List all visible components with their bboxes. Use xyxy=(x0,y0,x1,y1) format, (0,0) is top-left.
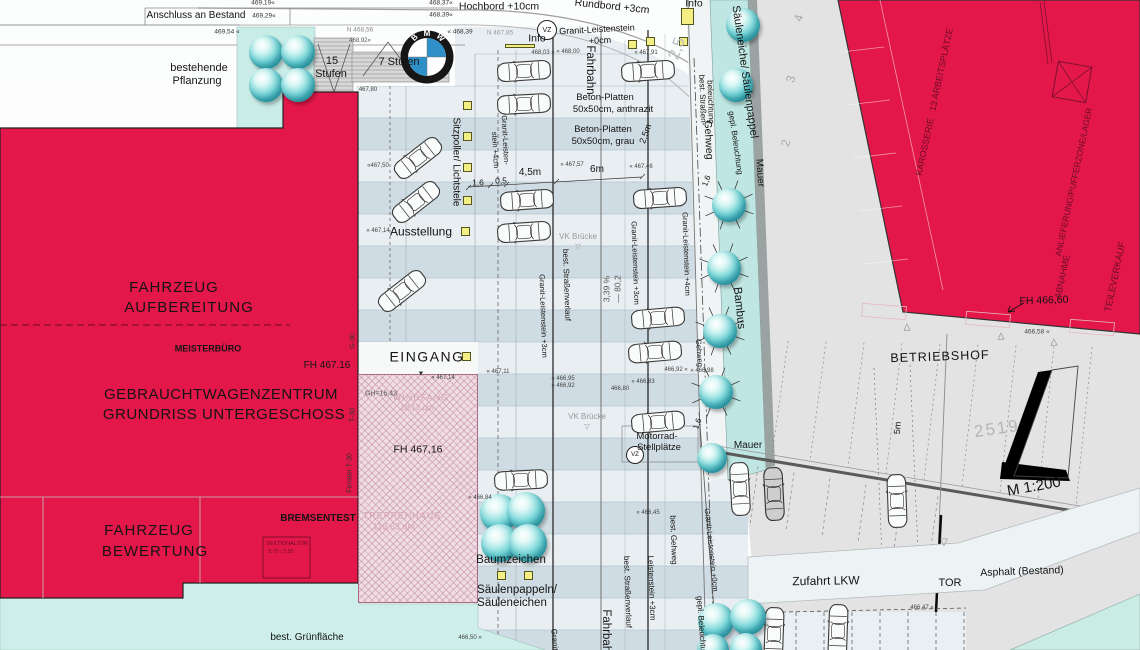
elevation-mark: «467,50 xyxy=(367,163,389,169)
car-symbol xyxy=(762,607,785,650)
sektionaltor: 3,75 / 3,50 xyxy=(268,550,294,556)
stufen-7: 7 Stufen xyxy=(379,57,420,69)
light-symbol xyxy=(497,571,506,580)
car-symbol xyxy=(762,467,786,521)
light-symbol xyxy=(463,132,472,141)
fahrbahn: Fahrbahn xyxy=(584,45,596,94)
survey-point: N 467,85 xyxy=(487,31,513,38)
anschluss-an-bestand: Anschluss an Bestand xyxy=(147,11,246,22)
windfang: WINDFANG xyxy=(393,393,450,402)
elevation-mark: « 467,14 xyxy=(366,228,389,234)
elevation-mark: 466,92 « xyxy=(664,367,687,373)
light-symbol xyxy=(461,227,470,236)
granit-leistenstein-4cm: Granit-Leisten- xyxy=(500,115,510,165)
elevation-mark: 469,19« xyxy=(251,1,275,8)
fenster-t30: Fenster T-30 xyxy=(346,453,353,493)
door-triangle: △ xyxy=(997,331,1004,341)
dimension: 5m xyxy=(893,421,903,434)
beton-platten-grau: Beton-Platten xyxy=(574,125,632,135)
gefaelle: — 80,2 xyxy=(614,275,623,302)
hochbord: Hochbord +10cm xyxy=(459,1,539,12)
elevation-mark: « 467,57 xyxy=(560,162,583,168)
tree-symbol xyxy=(281,68,315,102)
elevation-mark: 466,50 « xyxy=(458,635,481,641)
granit-leistenstein-3cm: Granit-Leistenstein +3cm xyxy=(630,221,641,305)
car-symbol xyxy=(826,604,849,650)
fahrzeug-aufbereitung: FAHRZEUG xyxy=(129,280,219,296)
dimension: 1,6 xyxy=(472,179,484,188)
meisterbuero: MEISTERBÜRO xyxy=(175,344,242,353)
door-triangle: △ xyxy=(903,322,910,332)
fh-467-16: FH 467.16 xyxy=(304,361,351,372)
elevation-mark: « 466,92 xyxy=(551,383,574,389)
treppenhaus: 113,63 qm xyxy=(373,522,415,531)
elevation-mark: « 468,00 xyxy=(556,49,579,55)
gate-arrow: ▽ xyxy=(940,538,948,549)
tree-symbol xyxy=(730,599,766,635)
info-label: Info xyxy=(685,0,703,10)
elevation-mark: 466,47 « xyxy=(910,605,933,611)
elevation-mark: 469,29« xyxy=(252,14,276,21)
elevation-mark: 468,39« xyxy=(429,13,453,20)
light-symbol xyxy=(646,37,655,46)
eingang-marker: ▼ xyxy=(418,370,425,377)
mauer: Mauer xyxy=(753,158,765,187)
light-symbol xyxy=(628,40,637,49)
elevation-mark: « 467,11 xyxy=(487,369,510,375)
elevation-mark: 468,37« xyxy=(429,1,453,8)
light-symbol xyxy=(463,196,472,205)
tuer-t30: T-30 xyxy=(349,408,356,422)
windfang: 18,12 qm xyxy=(400,404,433,412)
bamboo-tree-symbol xyxy=(712,188,746,222)
site-plan-canvas: Anschluss an Bestand469,19«469,29«469,54… xyxy=(0,0,1140,650)
elevation-mark: « 466,45 xyxy=(636,510,659,516)
gefaelle: 3,39 % xyxy=(603,276,612,302)
dimension: 0,5 xyxy=(495,177,507,186)
sektionaltor: SEKTIONALTOR xyxy=(266,542,308,548)
bremsentest: BREMSENTEST xyxy=(280,514,356,525)
baumzeichen: Baumzeichen xyxy=(476,554,546,566)
dimension: 4,5m xyxy=(519,168,541,179)
best-strassenverlauf: best. Straßenverlauf xyxy=(561,249,572,321)
gebrauchtwagenzentrum: GEBRAUCHTWAGENZENTRUM xyxy=(104,387,338,403)
beton-platten-anthrazit: 50x50cm, anthrazit xyxy=(573,105,653,115)
elevation-mark: 469,54 « xyxy=(214,30,239,37)
fahrzeug-bewertung: BEWERTUNG xyxy=(102,544,208,560)
saeulenpappeln-saeuleneichen: Säuleneichen xyxy=(477,597,547,609)
elevation-mark: « 467,91 xyxy=(634,50,657,56)
best-strassenverlauf: best. Straßenverlauf xyxy=(622,556,633,628)
door-triangle: △ xyxy=(1050,337,1057,347)
beton-platten-anthrazit: Beton-Platten xyxy=(576,93,634,103)
zufahrt-lkw: Zufahrt LKW xyxy=(792,574,860,588)
granit-leistenstein-4cm: Granit-Leistenstein +4cm xyxy=(681,212,692,296)
fahrbahn: Fahrbahn xyxy=(600,609,612,650)
car-symbol xyxy=(494,468,548,492)
vk-symbol: ▽ xyxy=(575,243,580,250)
tree-symbol xyxy=(249,35,283,69)
elevation-mark: « 467,14 xyxy=(431,375,454,381)
best-gruenflaeche: best. Grünfläche xyxy=(270,633,343,644)
eingang: EINGANG xyxy=(389,350,464,365)
elevation-mark: « 466,98 xyxy=(690,368,713,374)
elevation-mark: 468,92« xyxy=(349,38,371,44)
elevation-mark: 467,80 xyxy=(359,87,377,93)
light-symbol xyxy=(463,101,472,110)
tuer-g30: G-30 xyxy=(349,333,356,349)
bestehende-pflanzung: Pflanzung xyxy=(173,76,222,88)
bamboo-tree-symbol xyxy=(703,314,737,348)
light-symbol xyxy=(524,571,533,580)
stufen-15: 15 xyxy=(326,56,338,68)
fahrzeug-aufbereitung: AUFBEREITUNG xyxy=(124,300,254,316)
bestehende-pflanzung: bestehende xyxy=(170,63,228,75)
bamboo-tree-symbol xyxy=(707,251,741,285)
elevation-mark: 466,58 « xyxy=(1024,330,1049,337)
elevation-mark: 466,80 xyxy=(611,386,629,392)
treppenhaus: TREPPENHAUS xyxy=(363,511,442,520)
bmw-letter: M xyxy=(424,30,431,38)
elevation-mark: « 467,46 xyxy=(629,164,652,170)
vk-symbol: ▽ xyxy=(584,423,589,430)
dimension: 6m xyxy=(590,165,604,176)
saeulenpappeln-saeuleneichen: Säulenpappeln/ xyxy=(477,584,557,596)
best-strassenbeleuchtung: beleuchtung xyxy=(705,80,715,124)
elevation-mark: « 466,95 xyxy=(551,376,574,382)
car-symbol xyxy=(728,462,752,516)
tree-symbol xyxy=(281,35,315,69)
beton-platten-grau: 50x50cm, grau xyxy=(572,137,635,147)
tor: TOR xyxy=(938,578,961,590)
fahrzeug-bewertung: FAHRZEUG xyxy=(104,523,194,539)
car-symbol xyxy=(885,474,908,527)
tree-symbol xyxy=(249,68,283,102)
elevation-mark: « 468,39 xyxy=(447,30,472,37)
tree-symbol xyxy=(697,443,727,473)
vk-bruecke: VK Brücke xyxy=(559,233,597,241)
elevation-mark: 468,03 « xyxy=(531,50,554,56)
mauer: Mauer xyxy=(734,441,762,452)
sitzpoller-lichtstele: Sitzpoller/ Lichtstele xyxy=(450,118,461,207)
car-symbol xyxy=(497,92,551,116)
bamboo-tree-symbol xyxy=(699,375,733,409)
ausstellung: Ausstellung xyxy=(390,226,452,239)
motorrad-stellplaetze: Motorrad- xyxy=(636,432,677,442)
stufen-15: Stufen xyxy=(315,69,347,81)
gehweg: Gehweg xyxy=(701,120,714,160)
light-symbol xyxy=(463,163,472,172)
survey-point: N 468,56 xyxy=(347,28,373,35)
fh-467-16: FH 467,16 xyxy=(393,444,442,455)
motorrad-stellplaetze: Stellplätze xyxy=(637,443,681,453)
info-label: Info xyxy=(528,33,546,44)
light-symbol xyxy=(505,44,535,48)
vk-bruecke: VK Brücke xyxy=(568,413,606,421)
gebrauchtwagenzentrum: GRUNDRISS UNTERGESCHOSS xyxy=(103,407,345,423)
leistenstein-3cm: Leistenstein +3cm xyxy=(646,556,657,621)
gehweg: Gehweg xyxy=(694,339,704,367)
elevation-mark: « 466,84 xyxy=(468,495,491,501)
granit-leistenstein-3cm: Granit-Leistenstein +3cm xyxy=(538,274,549,358)
best-gehweg: best. Gehweg xyxy=(668,515,678,565)
light-symbol xyxy=(681,8,694,25)
elevation-mark: « 466,83 xyxy=(631,379,654,385)
granit-leistenstein-4cm: stein +4cm xyxy=(490,132,500,169)
granit-leistenstein: Granit- xyxy=(549,629,559,650)
